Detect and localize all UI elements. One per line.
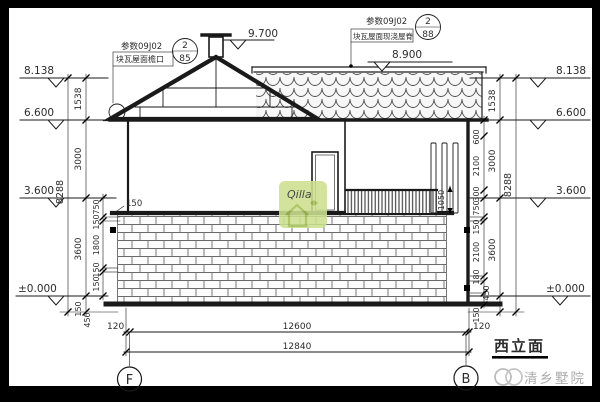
dim-value: 3000 xyxy=(488,149,498,172)
callout-ref: 参数09J02 xyxy=(121,41,162,52)
dim-value: 3000 xyxy=(74,147,84,170)
dim-value: 150 xyxy=(472,219,481,234)
dim-value: 450 xyxy=(83,312,92,327)
dim-value: 1538 xyxy=(74,87,84,110)
brand-name: 清乡墅院 xyxy=(524,371,586,387)
dim-value: 12840 xyxy=(283,342,312,352)
elevation-value: ±0.000 xyxy=(18,283,57,295)
wall-tie xyxy=(110,227,116,233)
elevation-value: 6.600 xyxy=(24,107,54,119)
leader-dot xyxy=(349,64,353,68)
dim-value: 8288 xyxy=(503,173,514,197)
peak-elevation-value: 9.700 xyxy=(248,28,278,40)
axis-letter: B xyxy=(462,372,471,387)
elevation-value: 3.600 xyxy=(24,185,54,197)
elevation-value: 6.600 xyxy=(556,107,586,119)
callout-label: 块瓦屋面现浇屋脊 xyxy=(353,31,413,41)
title-underline xyxy=(492,356,548,359)
elevation-value: 8.138 xyxy=(556,65,586,77)
detail-number: 2 xyxy=(182,41,188,51)
drawing-sheet: 9.700 8.900 参数09J02 块瓦屋面檐口 2 85 参数09J02 … xyxy=(0,0,600,402)
terrace-railing xyxy=(346,190,437,213)
dim-value-railing: 1050 xyxy=(437,190,446,210)
tile-roof-band xyxy=(256,73,482,119)
dim-value: 450 xyxy=(482,285,491,300)
detail-number: 2 xyxy=(425,17,431,27)
page-title: 西立面 xyxy=(494,337,545,355)
wall-tie xyxy=(464,227,470,233)
wall-tie xyxy=(464,285,470,291)
elevation-value: 3.600 xyxy=(556,185,586,197)
detail-page: 85 xyxy=(179,54,190,64)
dim-value: 2100 xyxy=(472,242,481,262)
dim-value: 180 xyxy=(472,269,481,284)
dim-value-parapet: 150 xyxy=(126,199,142,209)
dim-value: 120 xyxy=(107,322,124,332)
dim-value: 750 xyxy=(472,200,481,215)
elevation-value: 8.138 xyxy=(24,65,54,77)
dim-value: 150 xyxy=(92,262,101,277)
dim-value: 150 xyxy=(92,276,101,291)
axis-letter: F xyxy=(126,373,133,388)
brick-veneer xyxy=(118,215,446,304)
dim-value: 2100 xyxy=(472,156,481,176)
logo-script-text: Qilla xyxy=(287,188,312,201)
dim-value: 3600 xyxy=(488,238,498,261)
dim-value: 300 xyxy=(472,186,481,201)
west-elevation-drawing: 9.700 8.900 参数09J02 块瓦屋面檐口 2 85 参数09J02 … xyxy=(0,0,600,402)
dim-value: 12600 xyxy=(283,322,312,332)
detail-page: 88 xyxy=(422,30,434,40)
parapet-elevation-value: 8.900 xyxy=(392,49,422,61)
callout-ref: 参数09J02 xyxy=(366,16,407,27)
dim-value: 600 xyxy=(472,129,481,144)
dim-value: 150 xyxy=(472,307,481,322)
dim-value: 150 xyxy=(92,214,101,229)
dim-value: 8288 xyxy=(55,180,66,204)
dim-value: 3600 xyxy=(74,237,84,260)
dim-value: 120 xyxy=(473,322,490,332)
green-logo-watermark: Qilla xyxy=(279,181,327,228)
dim-value: 1538 xyxy=(488,89,498,112)
elevation-value: ±0.000 xyxy=(546,283,585,295)
dim-value: 1800 xyxy=(92,235,101,255)
callout-label: 块瓦屋面檐口 xyxy=(116,54,164,64)
dim-value: 150 xyxy=(74,301,83,316)
dim-value: 750 xyxy=(92,199,101,214)
